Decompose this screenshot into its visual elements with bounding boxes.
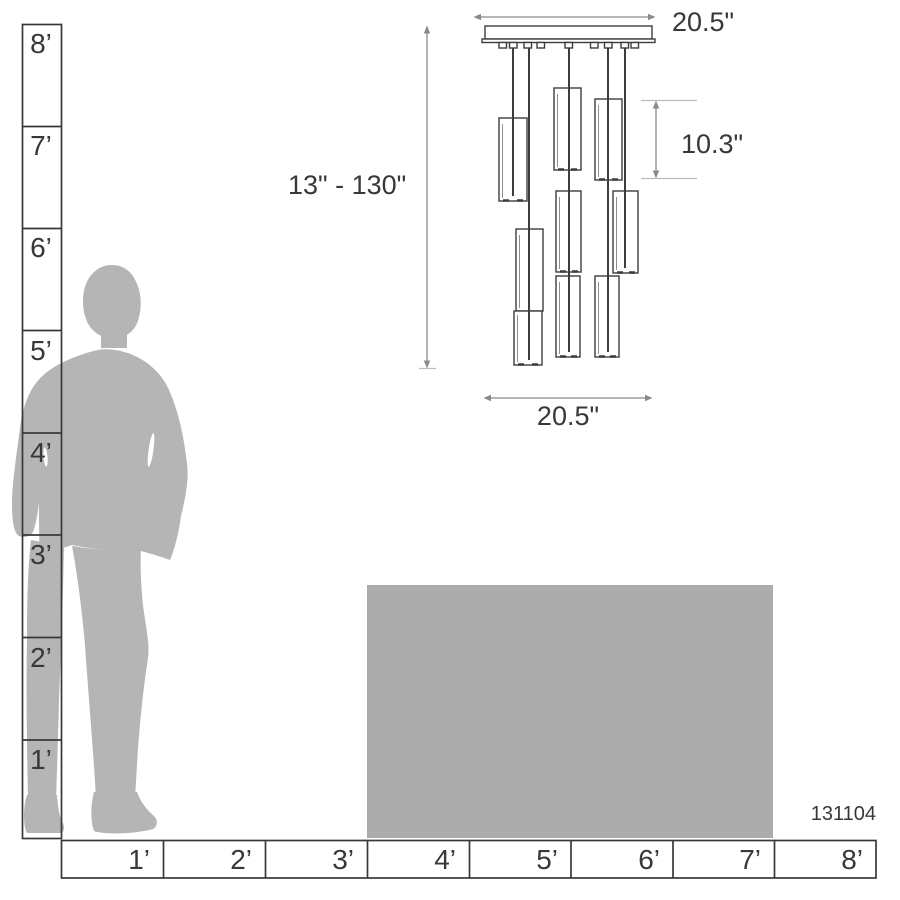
- canopy-width-label: 20.5": [672, 7, 734, 37]
- horizontal-ruler-label-5ft: 5’: [469, 844, 571, 876]
- silhouette-neck: [101, 328, 127, 348]
- table-block: [367, 585, 773, 838]
- horizontal-ruler-label-3ft: 3’: [265, 844, 367, 876]
- horizontal-ruler-label-8ft: 8’: [774, 844, 876, 876]
- vertical-ruler-label-3ft: 3’: [21, 539, 61, 571]
- silhouette-head: [83, 265, 141, 338]
- model-number: 131104: [766, 803, 876, 826]
- canopy-width-arrow: [474, 14, 656, 20]
- vertical-ruler-label-7ft: 7’: [21, 130, 61, 162]
- silhouette-front-boot: [91, 792, 157, 833]
- canopy-connectors: [499, 43, 639, 49]
- horizontal-ruler-label-2ft: 2’: [163, 844, 265, 876]
- vertical-ruler-label-1ft: 1’: [21, 744, 61, 776]
- pendant: [554, 88, 581, 170]
- horizontal-ruler-label-1ft: 1’: [61, 844, 163, 876]
- vertical-ruler-label-6ft: 6’: [21, 232, 61, 264]
- chandelier-canopy: [485, 26, 652, 39]
- silhouette-back-boot: [24, 795, 64, 833]
- vertical-ruler-label-4ft: 4’: [21, 437, 61, 469]
- horizontal-ruler-label-4ft: 4’: [367, 844, 469, 876]
- horizontal-ruler-label-6ft: 6’: [571, 844, 673, 876]
- vertical-ruler-label-2ft: 2’: [21, 642, 61, 674]
- fixture-width-label: 20.5": [508, 401, 628, 431]
- vertical-ruler-label-8ft: 8’: [21, 28, 61, 60]
- silhouette-front-leg: [72, 546, 149, 798]
- horizontal-ruler-label-7ft: 7’: [672, 844, 774, 876]
- height-range-label: 13" - 130": [288, 170, 406, 200]
- diagram-canvas: 20.5" 13" - 130" 10.3" 20.5" 131104 8’ 7…: [0, 0, 900, 900]
- height-range-arrow: [419, 26, 436, 369]
- chandelier-figure: [482, 26, 655, 365]
- pendant-height-label: 10.3": [681, 129, 743, 159]
- vertical-ruler-label-5ft: 5’: [21, 335, 61, 367]
- cords: [513, 48, 625, 360]
- diagram-graphics: [0, 0, 900, 900]
